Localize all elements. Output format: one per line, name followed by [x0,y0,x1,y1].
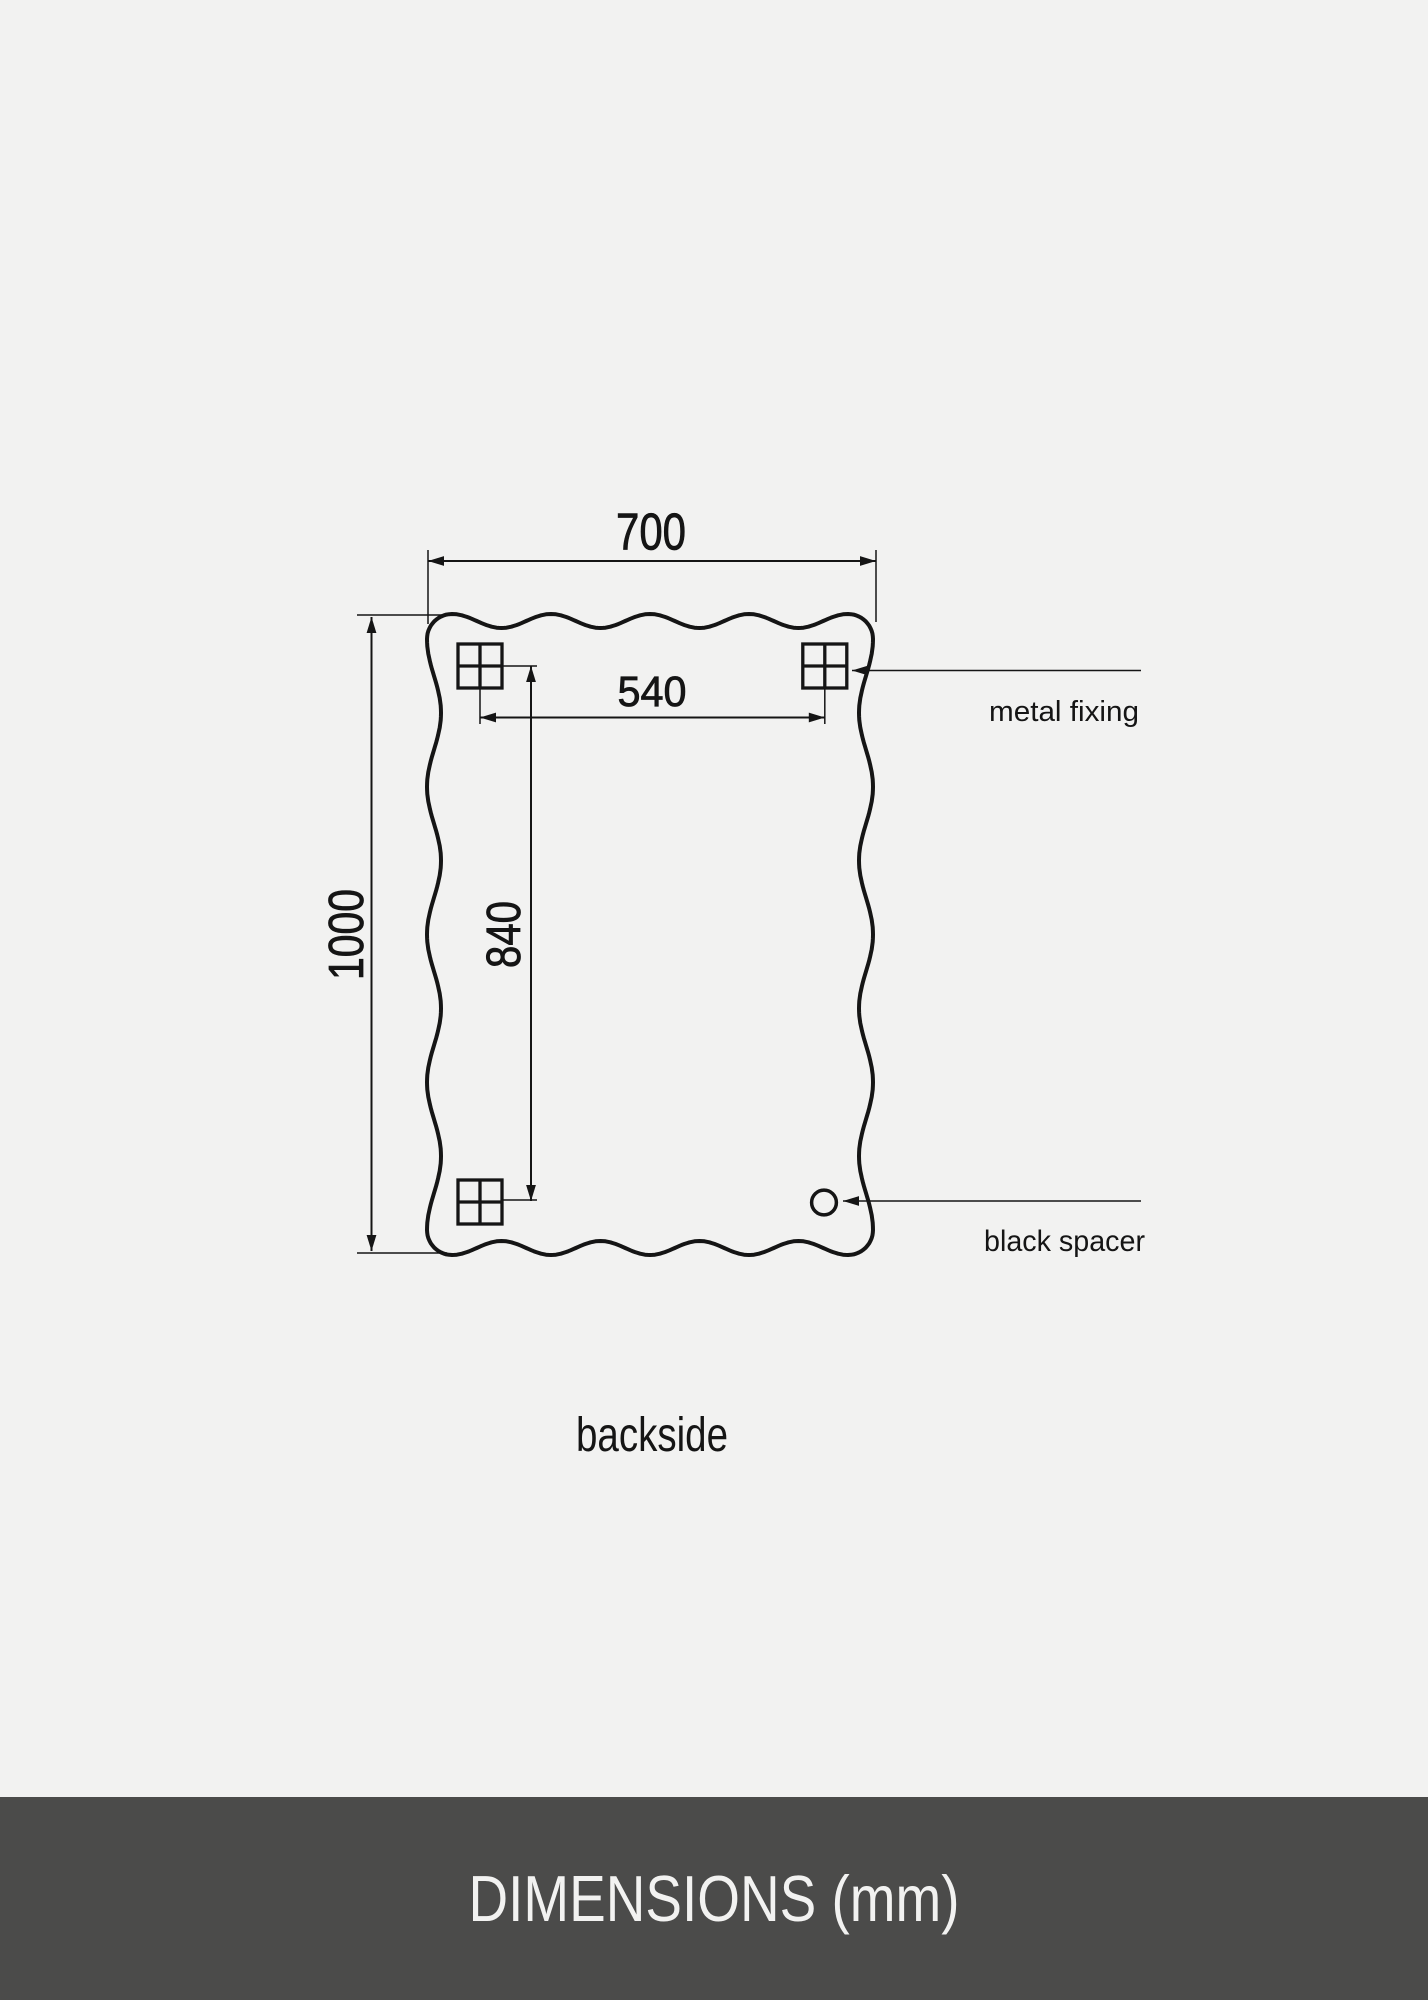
svg-text:DIMENSIONS (mm): DIMENSIONS (mm) [469,1863,960,1935]
svg-text:540: 540 [618,668,687,716]
svg-text:black spacer: black spacer [984,1225,1145,1258]
svg-text:840: 840 [478,901,531,968]
svg-text:backside: backside [576,1409,728,1462]
svg-text:metal fixing: metal fixing [989,696,1139,728]
svg-text:700: 700 [616,504,686,562]
svg-text:1000: 1000 [320,889,374,980]
